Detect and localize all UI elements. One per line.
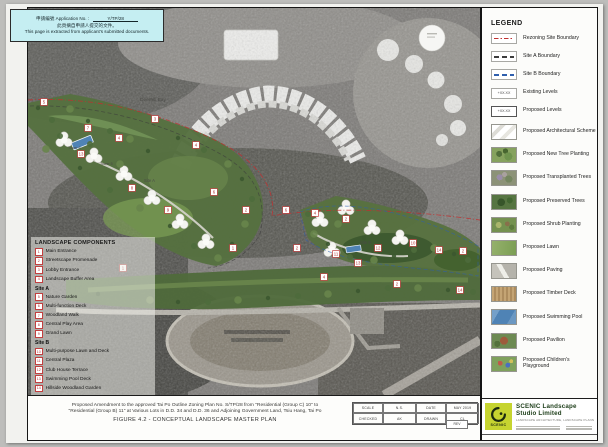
level-existing-symbol: +XX.XX xyxy=(491,88,517,99)
line-blue-symbol xyxy=(491,69,517,80)
component-item: 11Central Plaza xyxy=(35,357,151,365)
component-item: 1Main Entrance xyxy=(35,248,151,256)
legend-item: Proposed Paving xyxy=(491,263,597,279)
legend-item: Site B Boundary xyxy=(491,69,597,80)
extraction-notice-stamp: 申請編號 Application No. : Y/TP/28 此頁摘自申請人提交… xyxy=(10,9,164,42)
legend-item-label: Proposed Pavilion xyxy=(523,338,565,344)
rev-label: REV xyxy=(446,420,468,429)
notice-line-english: This page is extracted from applicant's … xyxy=(25,29,149,34)
map-marker-8: 8 xyxy=(129,185,136,192)
svg-text:10: 10 xyxy=(411,241,416,246)
legend-item: Rezoning Site Boundary xyxy=(491,33,597,44)
swatch-playground-symbol xyxy=(491,356,517,372)
component-label: Main Entrance xyxy=(46,249,77,254)
aerial-master-plan-map: Deerhill BayTower 6Tower 5Site ASite B 5… xyxy=(28,8,480,395)
component-number-badge: 13 xyxy=(35,375,43,383)
map-marker-2: 2 xyxy=(243,207,250,214)
legend-item-label: Proposed Levels xyxy=(523,108,562,114)
scenic-logo-mark xyxy=(490,406,507,423)
component-label: Swimming Pool Deck xyxy=(46,377,91,382)
scale-value: N.S. xyxy=(383,403,416,413)
component-label: Multi-purpose Lawn and Deck xyxy=(46,349,109,354)
map-marker-4: 4 xyxy=(321,274,328,281)
component-number-badge: 11 xyxy=(35,357,43,365)
components-group-heading: Site A xyxy=(35,286,151,292)
map-marker-4: 4 xyxy=(312,210,319,217)
component-item: 8Central Play Area xyxy=(35,321,151,329)
map-marker-3: 3 xyxy=(152,116,159,123)
swatch-transplanted-symbol xyxy=(491,170,517,186)
line-red-symbol xyxy=(491,33,517,44)
component-number-badge: 8 xyxy=(35,321,43,329)
component-number-badge: 5 xyxy=(35,293,43,301)
map-marker-9: 9 xyxy=(165,207,172,214)
swatch-pool-symbol xyxy=(491,309,517,325)
component-number-badge: 3 xyxy=(35,266,43,274)
map-marker-4: 4 xyxy=(116,135,123,142)
checked-label: CHECKED xyxy=(353,413,383,423)
component-item: 12Club House Terrace xyxy=(35,366,151,374)
svg-text:13: 13 xyxy=(79,152,84,157)
scenic-logo-text: SCENIC xyxy=(491,423,507,427)
swatch-pavilion-symbol xyxy=(491,333,517,349)
swatch-paving-symbol xyxy=(491,263,517,279)
legend-item: Proposed Timber Deck xyxy=(491,286,597,302)
studio-block: SCENIC SCENIC Landscape Studio Limited L… xyxy=(482,398,597,435)
swatch-lawn-symbol xyxy=(491,240,517,256)
map-marker-13: 13 xyxy=(355,260,362,267)
map-marker-2: 2 xyxy=(294,245,301,252)
component-item: 2Streetscape Promenade xyxy=(35,257,151,265)
component-label: Central Plaza xyxy=(46,358,75,363)
legend-item-label: Proposed Shrub Planting xyxy=(523,222,581,228)
application-no-value: Y/TP/28 xyxy=(93,16,138,22)
legend-item-label: Proposed Children's Playground xyxy=(523,358,597,370)
legend-item-label: Proposed Lawn xyxy=(523,245,559,251)
legend-item-label: Site A Boundary xyxy=(523,54,560,60)
map-text-label: Tower 5 xyxy=(100,162,113,166)
level-symbol-text: +XX.XX xyxy=(498,109,511,113)
map-marker-2: 2 xyxy=(343,216,350,223)
component-item: 14Hillside Woodland Garden xyxy=(35,385,151,393)
map-marker-7: 7 xyxy=(85,125,92,132)
component-number-badge: 4 xyxy=(35,276,43,284)
scenic-logo: SCENIC xyxy=(485,403,512,430)
legend-item-label: Site B Boundary xyxy=(523,72,561,78)
map-marker-4: 4 xyxy=(193,142,200,149)
svg-text:12: 12 xyxy=(376,246,381,251)
north-badge xyxy=(419,25,445,51)
legend-item: Site A Boundary xyxy=(491,51,597,62)
map-text-label: Site A xyxy=(144,178,155,183)
map-marker-12: 12 xyxy=(375,245,382,252)
notice-line-application-no: 申請編號 Application No. : Y/TP/28 xyxy=(36,16,138,21)
svg-text:13: 13 xyxy=(356,261,361,266)
components-title: LANDSCAPE COMPONENTS xyxy=(35,240,151,246)
map-marker-11: 11 xyxy=(333,251,340,258)
component-label: Central Play Area xyxy=(46,322,83,327)
component-label: Hillside Woodland Garden xyxy=(46,386,102,391)
map-text-label: Site B xyxy=(360,240,371,245)
drawing-frame: Deerhill BayTower 6Tower 5Site ASite B 5… xyxy=(27,7,598,441)
component-label: Lobby Entrance xyxy=(46,268,80,273)
legend-item-label: Existing Levels xyxy=(523,90,558,96)
component-label: Landscape Buffer Area xyxy=(46,277,95,282)
swatch-preserved-symbol xyxy=(491,194,517,210)
legend-panel: LEGEND Rezoning Site BoundarySite A Boun… xyxy=(480,8,597,440)
map-text-label: Tower 6 xyxy=(68,146,81,150)
legend-item-label: Proposed Architectural Scheme xyxy=(523,129,596,135)
map-marker-14: 14 xyxy=(436,247,443,254)
level-proposed-symbol: +XX.XX xyxy=(491,106,517,117)
component-label: Nature Garden xyxy=(46,295,78,300)
map-marker-5: 5 xyxy=(41,99,48,106)
legend-item: Proposed Architectural Scheme xyxy=(491,124,597,140)
component-label: Club House Terrace xyxy=(46,368,88,373)
legend-item-label: Proposed Swimming Pool xyxy=(523,315,582,321)
component-item: 7Woodland Walk xyxy=(35,312,151,320)
figure-number: FIGURE 4.2 - CONCEPTUAL LANDSCAPE MASTER… xyxy=(40,417,350,423)
component-label: Grand Lawn xyxy=(46,331,72,336)
legend-item: Proposed Pavilion xyxy=(491,333,597,349)
swatch-timber-symbol xyxy=(491,286,517,302)
line-black-symbol xyxy=(491,51,517,62)
map-marker-2: 2 xyxy=(460,248,467,255)
components-group-heading: Site B xyxy=(35,340,151,346)
map-marker-6: 6 xyxy=(283,207,290,214)
landscape-components-key: LANDSCAPE COMPONENTS 1Main Entrance2Stre… xyxy=(31,237,155,395)
drawing-title: Proposed Amendment to the approved Tai P… xyxy=(40,403,350,423)
title-block-band: Proposed Amendment to the approved Tai P… xyxy=(28,395,480,440)
component-item: 4Landscape Buffer Area xyxy=(35,276,151,284)
map-marker-14: 14 xyxy=(457,287,464,294)
map-marker-6: 6 xyxy=(211,189,218,196)
swatch-shrub-symbol xyxy=(491,217,517,233)
drawn-label: DRAWN xyxy=(416,413,446,423)
legend-item: Proposed Shrub Planting xyxy=(491,217,597,233)
legend-item: Proposed Children's Playground xyxy=(491,356,597,372)
map-text-label: Deerhill Bay xyxy=(140,97,166,103)
legend-item: +XX.XXExisting Levels xyxy=(491,88,597,99)
legend-item: Proposed New Tree Planting xyxy=(491,147,597,163)
component-item: 6Multi-function Deck xyxy=(35,303,151,311)
scanned-plan-page: 申請編號 Application No. : Y/TP/28 此頁摘自申請人提交… xyxy=(0,0,608,447)
studio-name: SCENIC Landscape Studio Limited xyxy=(516,403,594,417)
component-number-badge: 1 xyxy=(35,248,43,256)
component-label: Streetscape Promenade xyxy=(46,258,98,263)
checked-value: AK xyxy=(383,413,416,423)
component-number-badge: 6 xyxy=(35,303,43,311)
component-number-badge: 2 xyxy=(35,257,43,265)
component-label: Multi-function Deck xyxy=(46,304,87,309)
legend-item-label: Proposed Preserved Trees xyxy=(523,199,585,205)
svg-text:11: 11 xyxy=(334,252,339,257)
component-item: 5Nature Garden xyxy=(35,293,151,301)
map-marker-1: 1 xyxy=(230,245,237,252)
legend-item: Proposed Lawn xyxy=(491,240,597,256)
map-marker-10: 10 xyxy=(410,240,417,247)
component-item: 3Lobby Entrance xyxy=(35,266,151,274)
date-value: MAY 2019 xyxy=(446,403,479,413)
legend-item: Proposed Preserved Trees xyxy=(491,194,597,210)
title-block-table: SCALE N.S. DATE MAY 2019 CHECKED AK DRAW… xyxy=(352,402,478,425)
notice-line-chinese: 此頁摘自申請人提交的文件。 xyxy=(57,23,117,28)
map-marker-2: 2 xyxy=(394,281,401,288)
component-item: 9Grand Lawn xyxy=(35,330,151,338)
legend-item-label: Rezoning Site Boundary xyxy=(523,36,579,42)
studio-address-lines xyxy=(516,424,594,430)
component-label: Woodland Walk xyxy=(46,313,79,318)
level-symbol-text: +XX.XX xyxy=(498,91,511,95)
application-no-label: 申請編號 Application No. : xyxy=(36,16,89,21)
title-line-2: "Residential (Group B) 11" at Various Lo… xyxy=(40,409,350,415)
component-number-badge: 14 xyxy=(35,385,43,393)
svg-text:14: 14 xyxy=(437,248,442,253)
studio-tagline: LANDSCAPE ARCHITECTURE, LANDSCAPE PLANNI… xyxy=(516,418,594,422)
date-label: DATE xyxy=(416,403,446,413)
component-number-badge: 7 xyxy=(35,312,43,320)
legend-title: LEGEND xyxy=(491,20,597,27)
scale-label: SCALE xyxy=(353,403,383,413)
legend-item-label: Proposed Paving xyxy=(523,268,563,274)
legend-item: Proposed Swimming Pool xyxy=(491,309,597,325)
swatch-newtree-symbol xyxy=(491,147,517,163)
component-number-badge: 9 xyxy=(35,330,43,338)
legend-item: +XX.XXProposed Levels xyxy=(491,106,597,117)
legend-item-label: Proposed Timber Deck xyxy=(523,291,576,297)
map-marker-13: 13 xyxy=(78,151,85,158)
component-item: 13Swimming Pool Deck xyxy=(35,375,151,383)
legend-item-label: Proposed New Tree Planting xyxy=(523,152,589,158)
svg-text:14: 14 xyxy=(458,288,463,293)
legend-item-label: Proposed Transplanted Trees xyxy=(523,175,591,181)
swatch-arch-symbol xyxy=(491,124,517,140)
legend-item: Proposed Transplanted Trees xyxy=(491,170,597,186)
component-number-badge: 10 xyxy=(35,348,43,356)
component-number-badge: 12 xyxy=(35,366,43,374)
drawing-sheet: 申請編號 Application No. : Y/TP/28 此頁摘自申請人提交… xyxy=(6,4,603,443)
component-item: 10Multi-purpose Lawn and Deck xyxy=(35,348,151,356)
